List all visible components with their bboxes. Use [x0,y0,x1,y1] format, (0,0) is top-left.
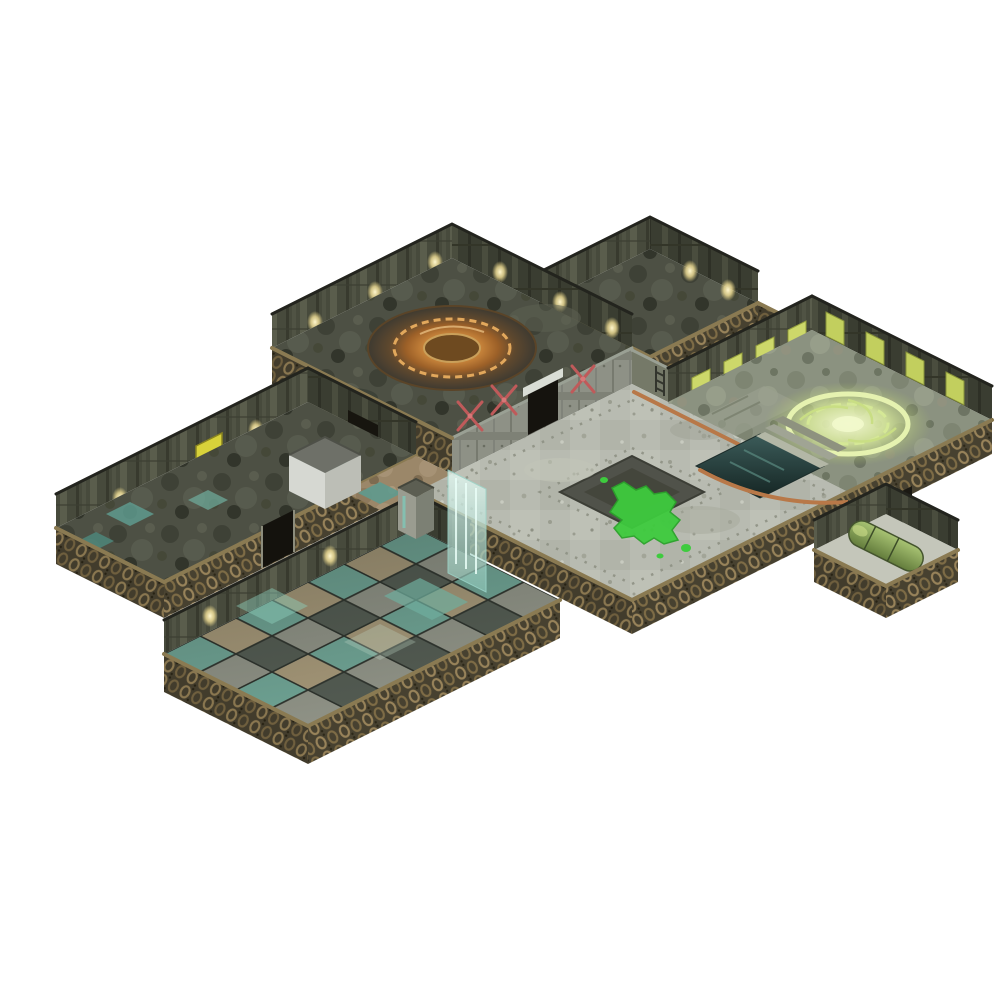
product-photo-terrain-set [0,0,1000,1000]
terrain-illustration [0,0,1000,1000]
orange-hatch [368,306,536,390]
hall-lamp-glow [322,545,338,567]
annex-lamp-glow [682,260,698,282]
annex-lamp-glow [720,279,736,301]
hall-lamp-glow [202,605,218,627]
corner-door-pillar [398,479,434,539]
plaza-weathering [524,458,596,482]
